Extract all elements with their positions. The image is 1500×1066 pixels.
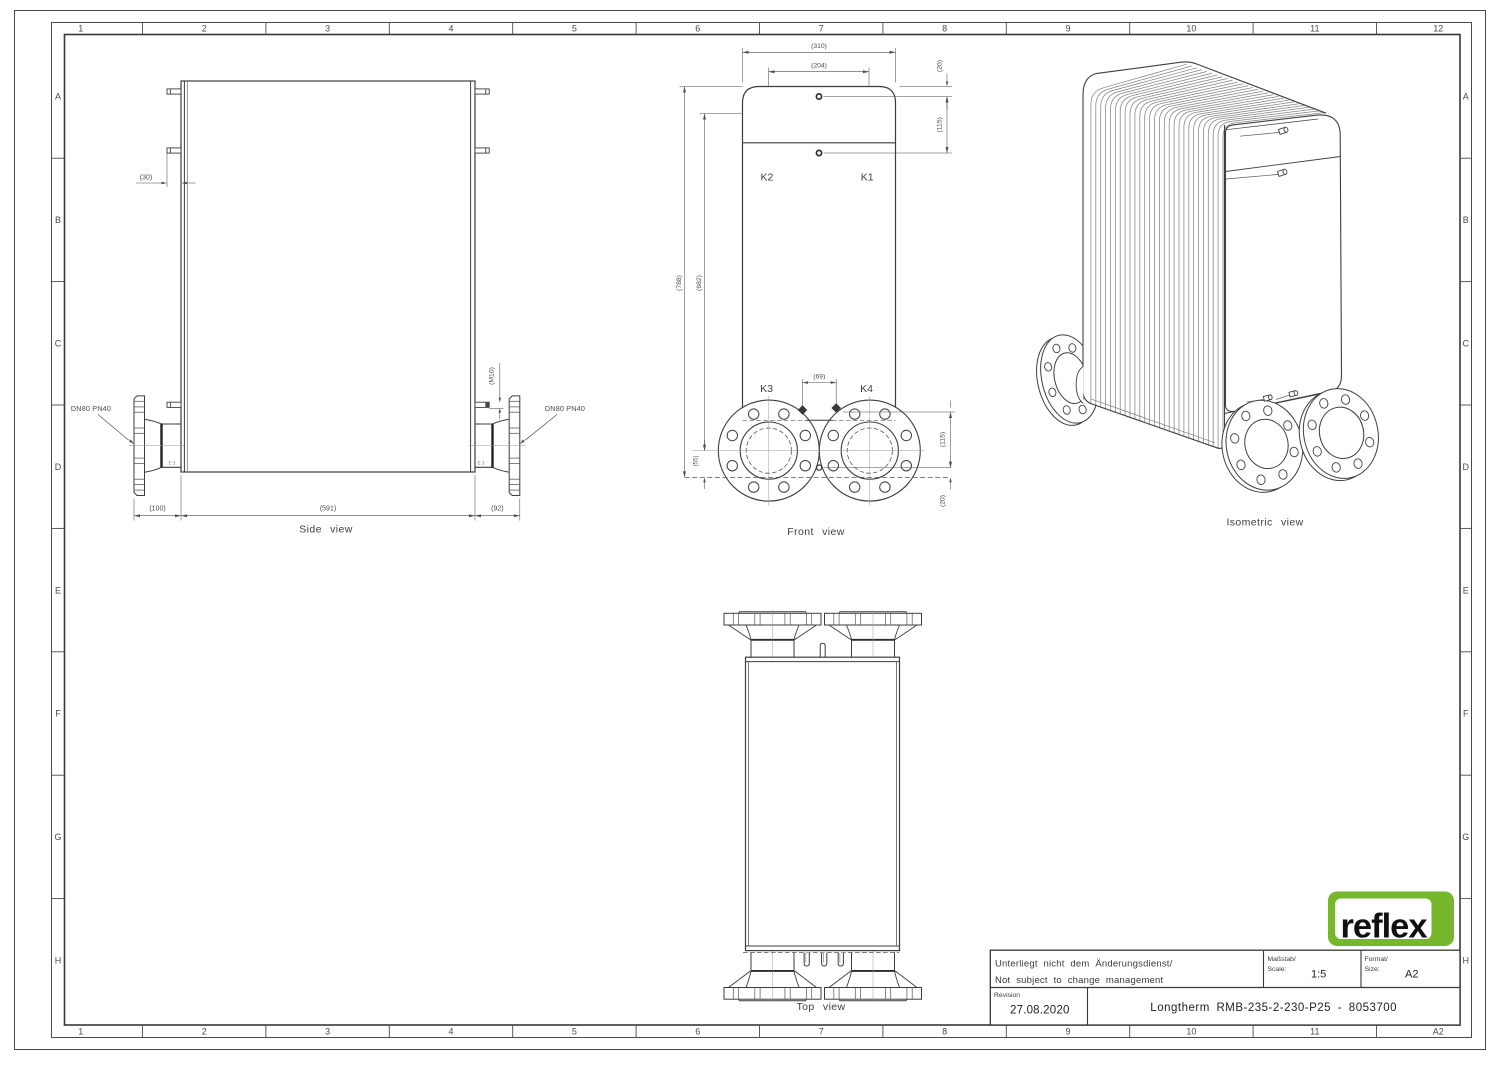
svg-text:DN80 PN40: DN80 PN40 [71, 404, 111, 413]
svg-text:Size:: Size: [1365, 966, 1380, 973]
svg-text:E: E [55, 585, 61, 595]
svg-text:B: B [1463, 215, 1469, 225]
svg-text:1: 1 [78, 24, 83, 34]
svg-text:Revision: Revision [994, 992, 1020, 999]
svg-text:G: G [54, 832, 61, 842]
svg-text:11: 11 [1310, 1027, 1319, 1037]
svg-text:K1: K1 [861, 172, 874, 184]
svg-text:3: 3 [325, 1027, 330, 1037]
svg-text:(591): (591) [320, 506, 336, 513]
svg-text:Scale:: Scale: [1268, 966, 1287, 973]
svg-text:F: F [55, 709, 61, 719]
svg-text:(92): (92) [491, 506, 503, 513]
svg-text:4: 4 [448, 1027, 453, 1037]
svg-text:7: 7 [819, 24, 824, 34]
svg-text:Unterliegt nicht dem Änderungs: Unterliegt nicht dem Änderungsdienst/ [995, 959, 1173, 970]
svg-text:K2: K2 [760, 172, 773, 184]
svg-text:(20): (20) [940, 495, 947, 507]
svg-text:Top view: Top view [796, 1001, 845, 1013]
svg-text:E: E [1463, 585, 1469, 595]
svg-text:Isometric view: Isometric view [1226, 517, 1303, 529]
svg-text:27.08.2020: 27.08.2020 [1010, 1005, 1070, 1017]
svg-text:8: 8 [942, 1027, 947, 1037]
svg-text:5: 5 [572, 24, 577, 34]
svg-text:(788): (788) [676, 275, 683, 291]
svg-text:Front view: Front view [787, 526, 844, 538]
svg-text:C: C [55, 339, 62, 349]
svg-text:10: 10 [1186, 1027, 1196, 1037]
svg-text:10: 10 [1186, 24, 1196, 34]
svg-text:(204): (204) [811, 62, 827, 69]
svg-text:3: 3 [325, 24, 330, 34]
svg-text:11: 11 [1310, 24, 1319, 34]
svg-text:7: 7 [819, 1027, 824, 1037]
svg-text:D: D [1463, 462, 1470, 472]
svg-text:E 3: E 3 [169, 461, 176, 466]
svg-text:6: 6 [695, 24, 700, 34]
svg-text:12: 12 [1433, 24, 1443, 34]
svg-text:1:5: 1:5 [1311, 969, 1326, 981]
svg-text:9: 9 [1065, 1027, 1070, 1037]
svg-text:G: G [1462, 832, 1469, 842]
svg-text:2: 2 [202, 24, 207, 34]
svg-text:4: 4 [448, 24, 453, 34]
svg-text:DN80 PN40: DN80 PN40 [545, 404, 585, 413]
svg-text:2: 2 [202, 1027, 207, 1037]
svg-text:D: D [55, 462, 62, 472]
svg-text:reflex: reflex [1340, 908, 1427, 946]
svg-text:Not subject to change manageme: Not subject to change management [995, 975, 1164, 986]
svg-text:Format/: Format/ [1365, 956, 1389, 963]
svg-text:K3: K3 [760, 383, 773, 395]
svg-text:A: A [1463, 92, 1469, 102]
svg-text:A: A [55, 92, 61, 102]
svg-text:(115): (115) [937, 117, 944, 132]
svg-text:F: F [1463, 709, 1469, 719]
svg-text:H: H [55, 956, 62, 966]
svg-text:(310): (310) [811, 43, 827, 50]
svg-text:Longtherm RMB-235-2-230-P25: Longtherm RMB-235-2-230-P25 - 8053700 [1150, 1002, 1397, 1014]
svg-text:K4: K4 [860, 383, 873, 395]
svg-text:(20): (20) [937, 60, 944, 72]
svg-text:(55): (55) [693, 455, 700, 466]
svg-text:(M10): (M10) [489, 367, 496, 385]
svg-text:(69): (69) [813, 374, 825, 381]
svg-text:5: 5 [572, 1027, 577, 1037]
svg-text:C: C [1463, 339, 1470, 349]
svg-text:H: H [1463, 956, 1470, 966]
svg-text:A2: A2 [1433, 1027, 1444, 1037]
svg-text:(100): (100) [149, 506, 165, 513]
svg-text:Side view: Side view [299, 524, 353, 536]
svg-text:8: 8 [942, 24, 947, 34]
svg-text:Maßstab/: Maßstab/ [1268, 956, 1296, 963]
svg-text:B: B [55, 215, 61, 225]
svg-text:(115): (115) [940, 432, 947, 447]
svg-text:(30): (30) [140, 175, 152, 182]
svg-text:E 3: E 3 [478, 461, 485, 466]
svg-text:A2: A2 [1405, 969, 1418, 981]
svg-text:1: 1 [78, 1027, 83, 1037]
svg-text:(682): (682) [696, 275, 703, 291]
svg-text:6: 6 [695, 1027, 700, 1037]
svg-text:9: 9 [1065, 24, 1070, 34]
